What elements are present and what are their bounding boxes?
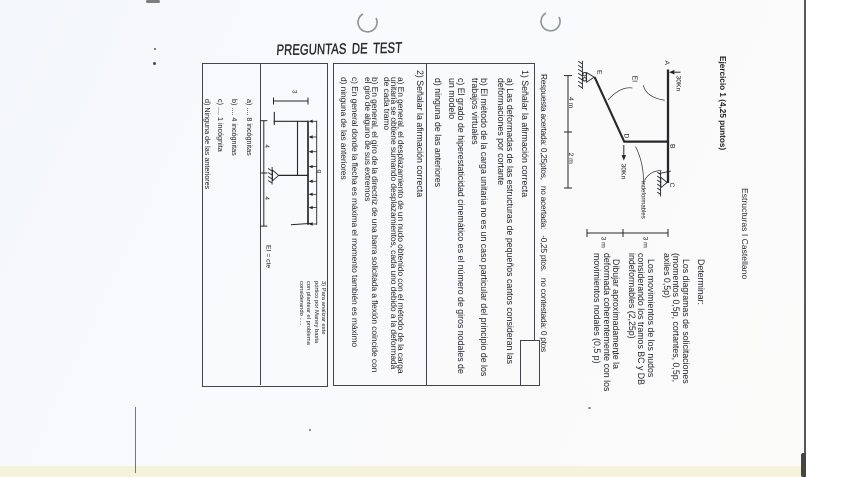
svg-text:EI = cte: EI = cte	[265, 245, 272, 268]
svg-text:4: 4	[263, 145, 270, 149]
svg-text:q: q	[316, 170, 323, 174]
svg-text:3: 3	[291, 90, 298, 94]
svg-text:4: 4	[263, 197, 270, 201]
